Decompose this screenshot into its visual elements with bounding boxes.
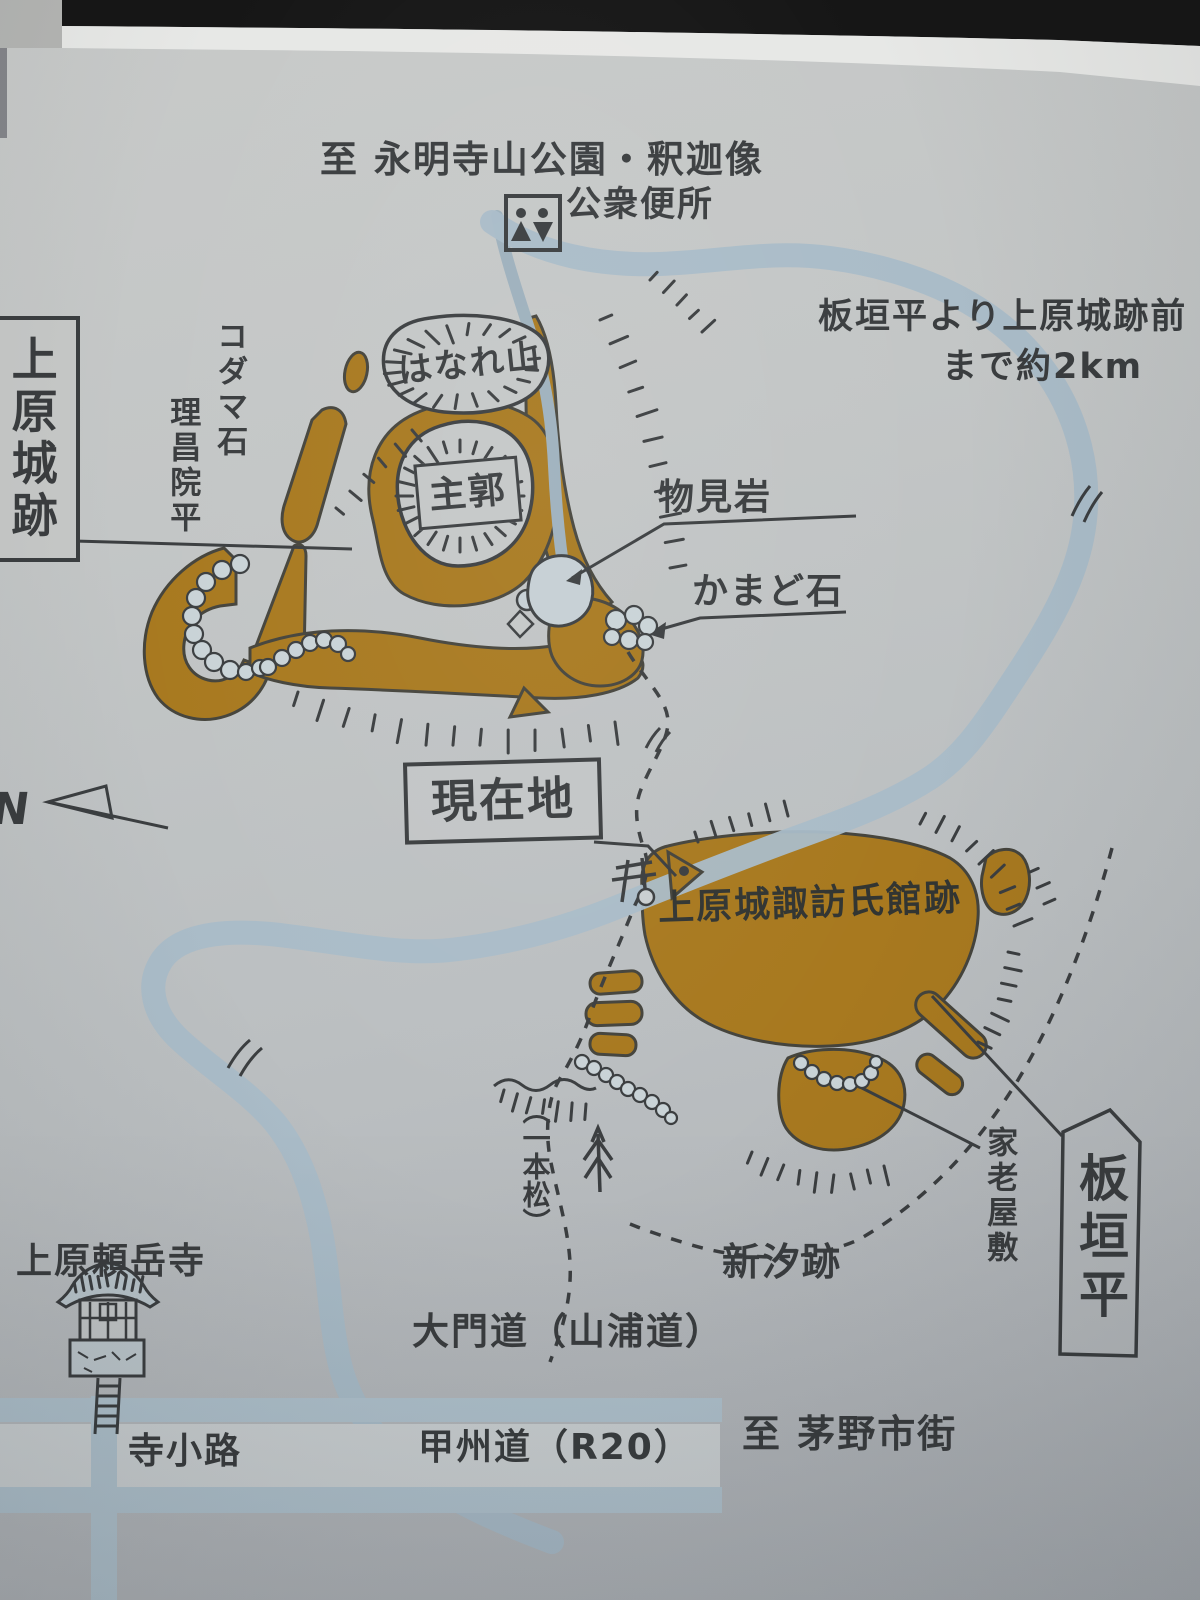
public-toilet-label: 公衆便所 <box>566 184 714 226</box>
temple-ladder <box>95 1378 120 1434</box>
main-bailey-box: 主郭 <box>413 456 522 531</box>
north-arrow <box>48 786 168 828</box>
main-bailey-label: 主郭 <box>427 467 509 518</box>
daimon-road-label: 大門道（山浦道） <box>412 1310 724 1354</box>
kamado-ishi-label: かまど石 <box>692 570 844 613</box>
tera-koji-label: 寺小路 <box>128 1430 242 1473</box>
signboard-photo: 至 永明寺山公園・釈迦像 公衆便所 板垣平より上原城跡前 まで約2km 上原城跡… <box>0 0 1200 1600</box>
rishoin-daira-label: 理昌院平 <box>163 396 200 576</box>
break-marks <box>228 486 1102 1076</box>
monomi-iwa-label: 物見岩 <box>658 476 772 519</box>
ippon-matsu-label: （一本松） <box>518 1096 552 1316</box>
monomiiwa-leader <box>572 516 856 578</box>
you-are-here-box: 現在地 <box>403 757 603 844</box>
distance-note-line1: 板垣平より上原城跡前 <box>818 296 1187 338</box>
kamadoishi-leader <box>658 612 846 630</box>
raigakuji-label: 上原頼岳寺 <box>16 1240 206 1283</box>
distance-note-line2: まで約2km <box>942 346 1143 388</box>
you-are-here-label: 現在地 <box>430 772 575 831</box>
pine-tree-icon <box>584 1128 612 1192</box>
castle-title-box: 上原城跡 <box>0 316 80 562</box>
kodama-stone-label: コダマ石 <box>210 320 247 480</box>
castle-title-label: 上原城跡 <box>3 335 58 543</box>
shinshio-ato-label: 新汐跡 <box>722 1240 842 1286</box>
koshu-road-label: 甲州道（R20） <box>418 1426 692 1469</box>
karo-yashiki-label: 家老屋敷 <box>980 1126 1017 1306</box>
to-chino-label: 至 茅野市街 <box>742 1412 957 1458</box>
photo-frame <box>0 0 1200 138</box>
destination-park-label: 至 永明寺山公園・釈迦像 <box>320 138 764 182</box>
hill-sketch <box>494 1080 596 1091</box>
gate-dot <box>679 866 689 876</box>
castle-title-leader <box>74 541 352 549</box>
mansion-marker-dot <box>638 889 654 905</box>
itagaki-daira-label: 板垣平 <box>1070 1152 1130 1352</box>
